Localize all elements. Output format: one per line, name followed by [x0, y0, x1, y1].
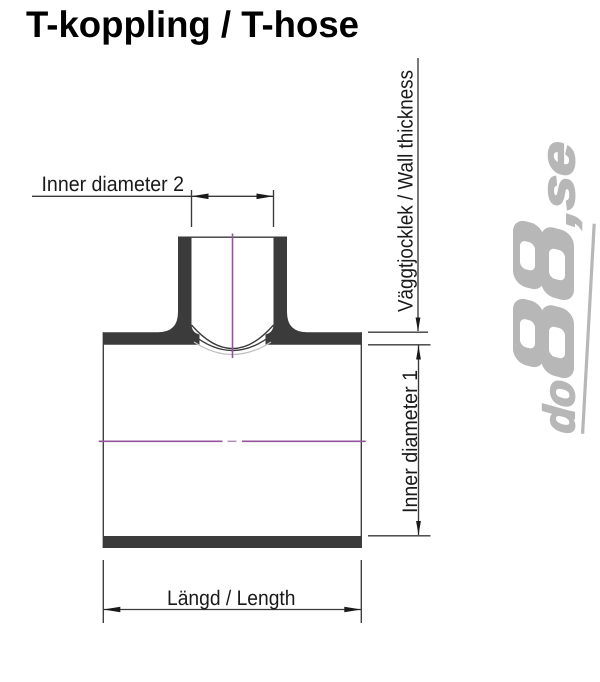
svg-text:do: do	[536, 378, 584, 435]
svg-text:Inner diameter 1: Inner diameter 1	[399, 370, 422, 513]
svg-text:Väggtjocklek / Wall thickness: Väggtjocklek / Wall thickness	[395, 70, 418, 312]
svg-text:Längd / Length: Längd / Length	[167, 587, 296, 610]
svg-text:T-koppling / T-hose: T-koppling / T-hose	[26, 4, 359, 45]
svg-text:,se: ,se	[531, 139, 584, 229]
svg-text:Inner diameter 2: Inner diameter 2	[42, 173, 185, 196]
